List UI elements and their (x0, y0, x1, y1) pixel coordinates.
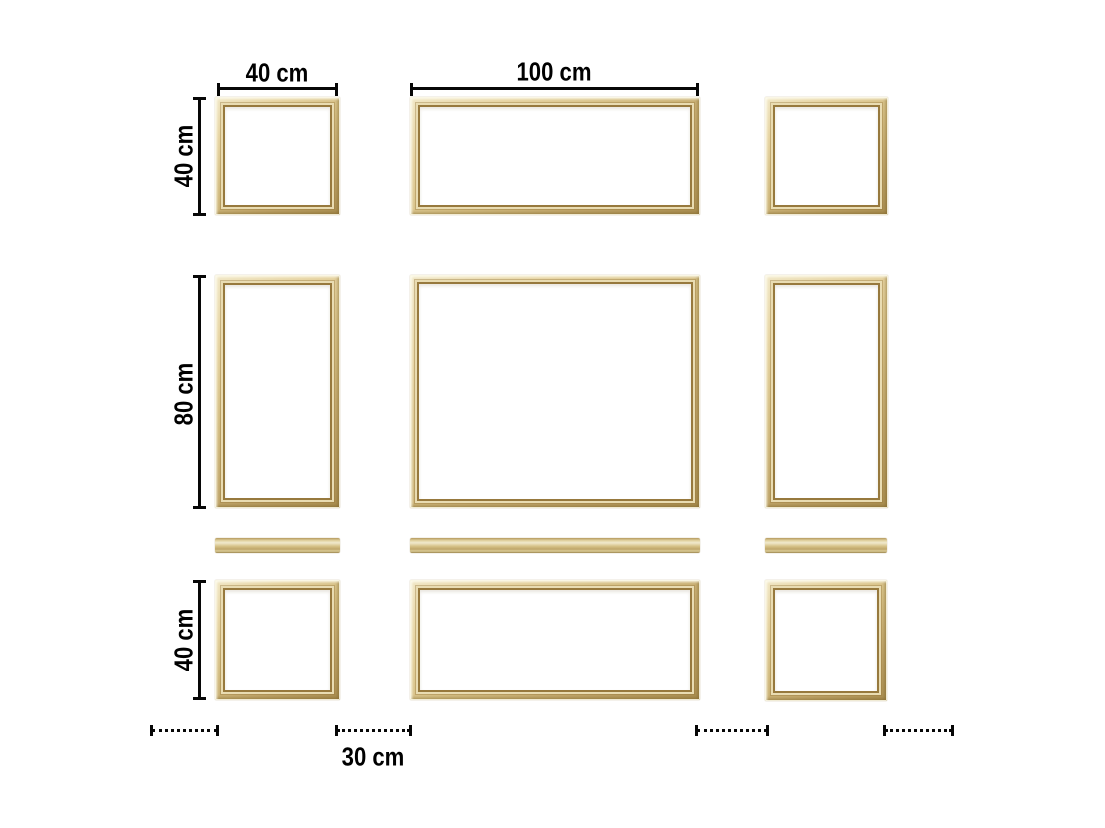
frame-bottom-center (410, 580, 700, 700)
frame-top-left-opening (225, 107, 330, 205)
dim-label-spacing: 30 cm (342, 742, 405, 773)
frame-bottom-left-opening (225, 590, 330, 690)
dim-label-top-row-height: 40 cm (169, 125, 200, 188)
frame-bottom-right (765, 580, 887, 701)
frame-middle-left (215, 275, 340, 508)
frame-bottom-center-opening (420, 590, 690, 690)
rail-moulding-right (765, 538, 887, 553)
frame-middle-left-opening (225, 285, 330, 498)
dim-label-bottom-row-height: 40 cm (169, 609, 200, 672)
spacing-dotted-line-left-gap (337, 729, 410, 732)
rail-moulding-left (215, 538, 340, 553)
dim-label-small-frame-width: 40 cm (246, 58, 309, 89)
frame-top-center (410, 97, 700, 215)
frame-top-left (215, 97, 340, 215)
spacing-dotted-line-right-gap (697, 729, 767, 732)
dim-label-large-frame-width: 100 cm (517, 57, 592, 88)
frame-top-center-opening (420, 107, 690, 205)
frame-middle-center (410, 275, 700, 508)
frame-bottom-left (215, 580, 340, 700)
frame-top-right (765, 97, 888, 215)
frame-middle-center-opening (419, 284, 691, 499)
frame-bottom-right-opening (775, 590, 877, 691)
frame-top-right-opening (775, 107, 878, 205)
spacing-dotted-line-right-margin (885, 729, 952, 732)
frame-middle-right-opening (775, 285, 878, 498)
rail-moulding-center (410, 538, 700, 553)
dim-label-middle-row-height: 80 cm (169, 363, 200, 426)
frame-layout-diagram: 40 cm 100 cm 40 cm 80 cm 40 cm 30 cm (0, 0, 1105, 828)
spacing-dotted-line-left-margin (152, 729, 217, 732)
frame-middle-right (765, 275, 888, 508)
